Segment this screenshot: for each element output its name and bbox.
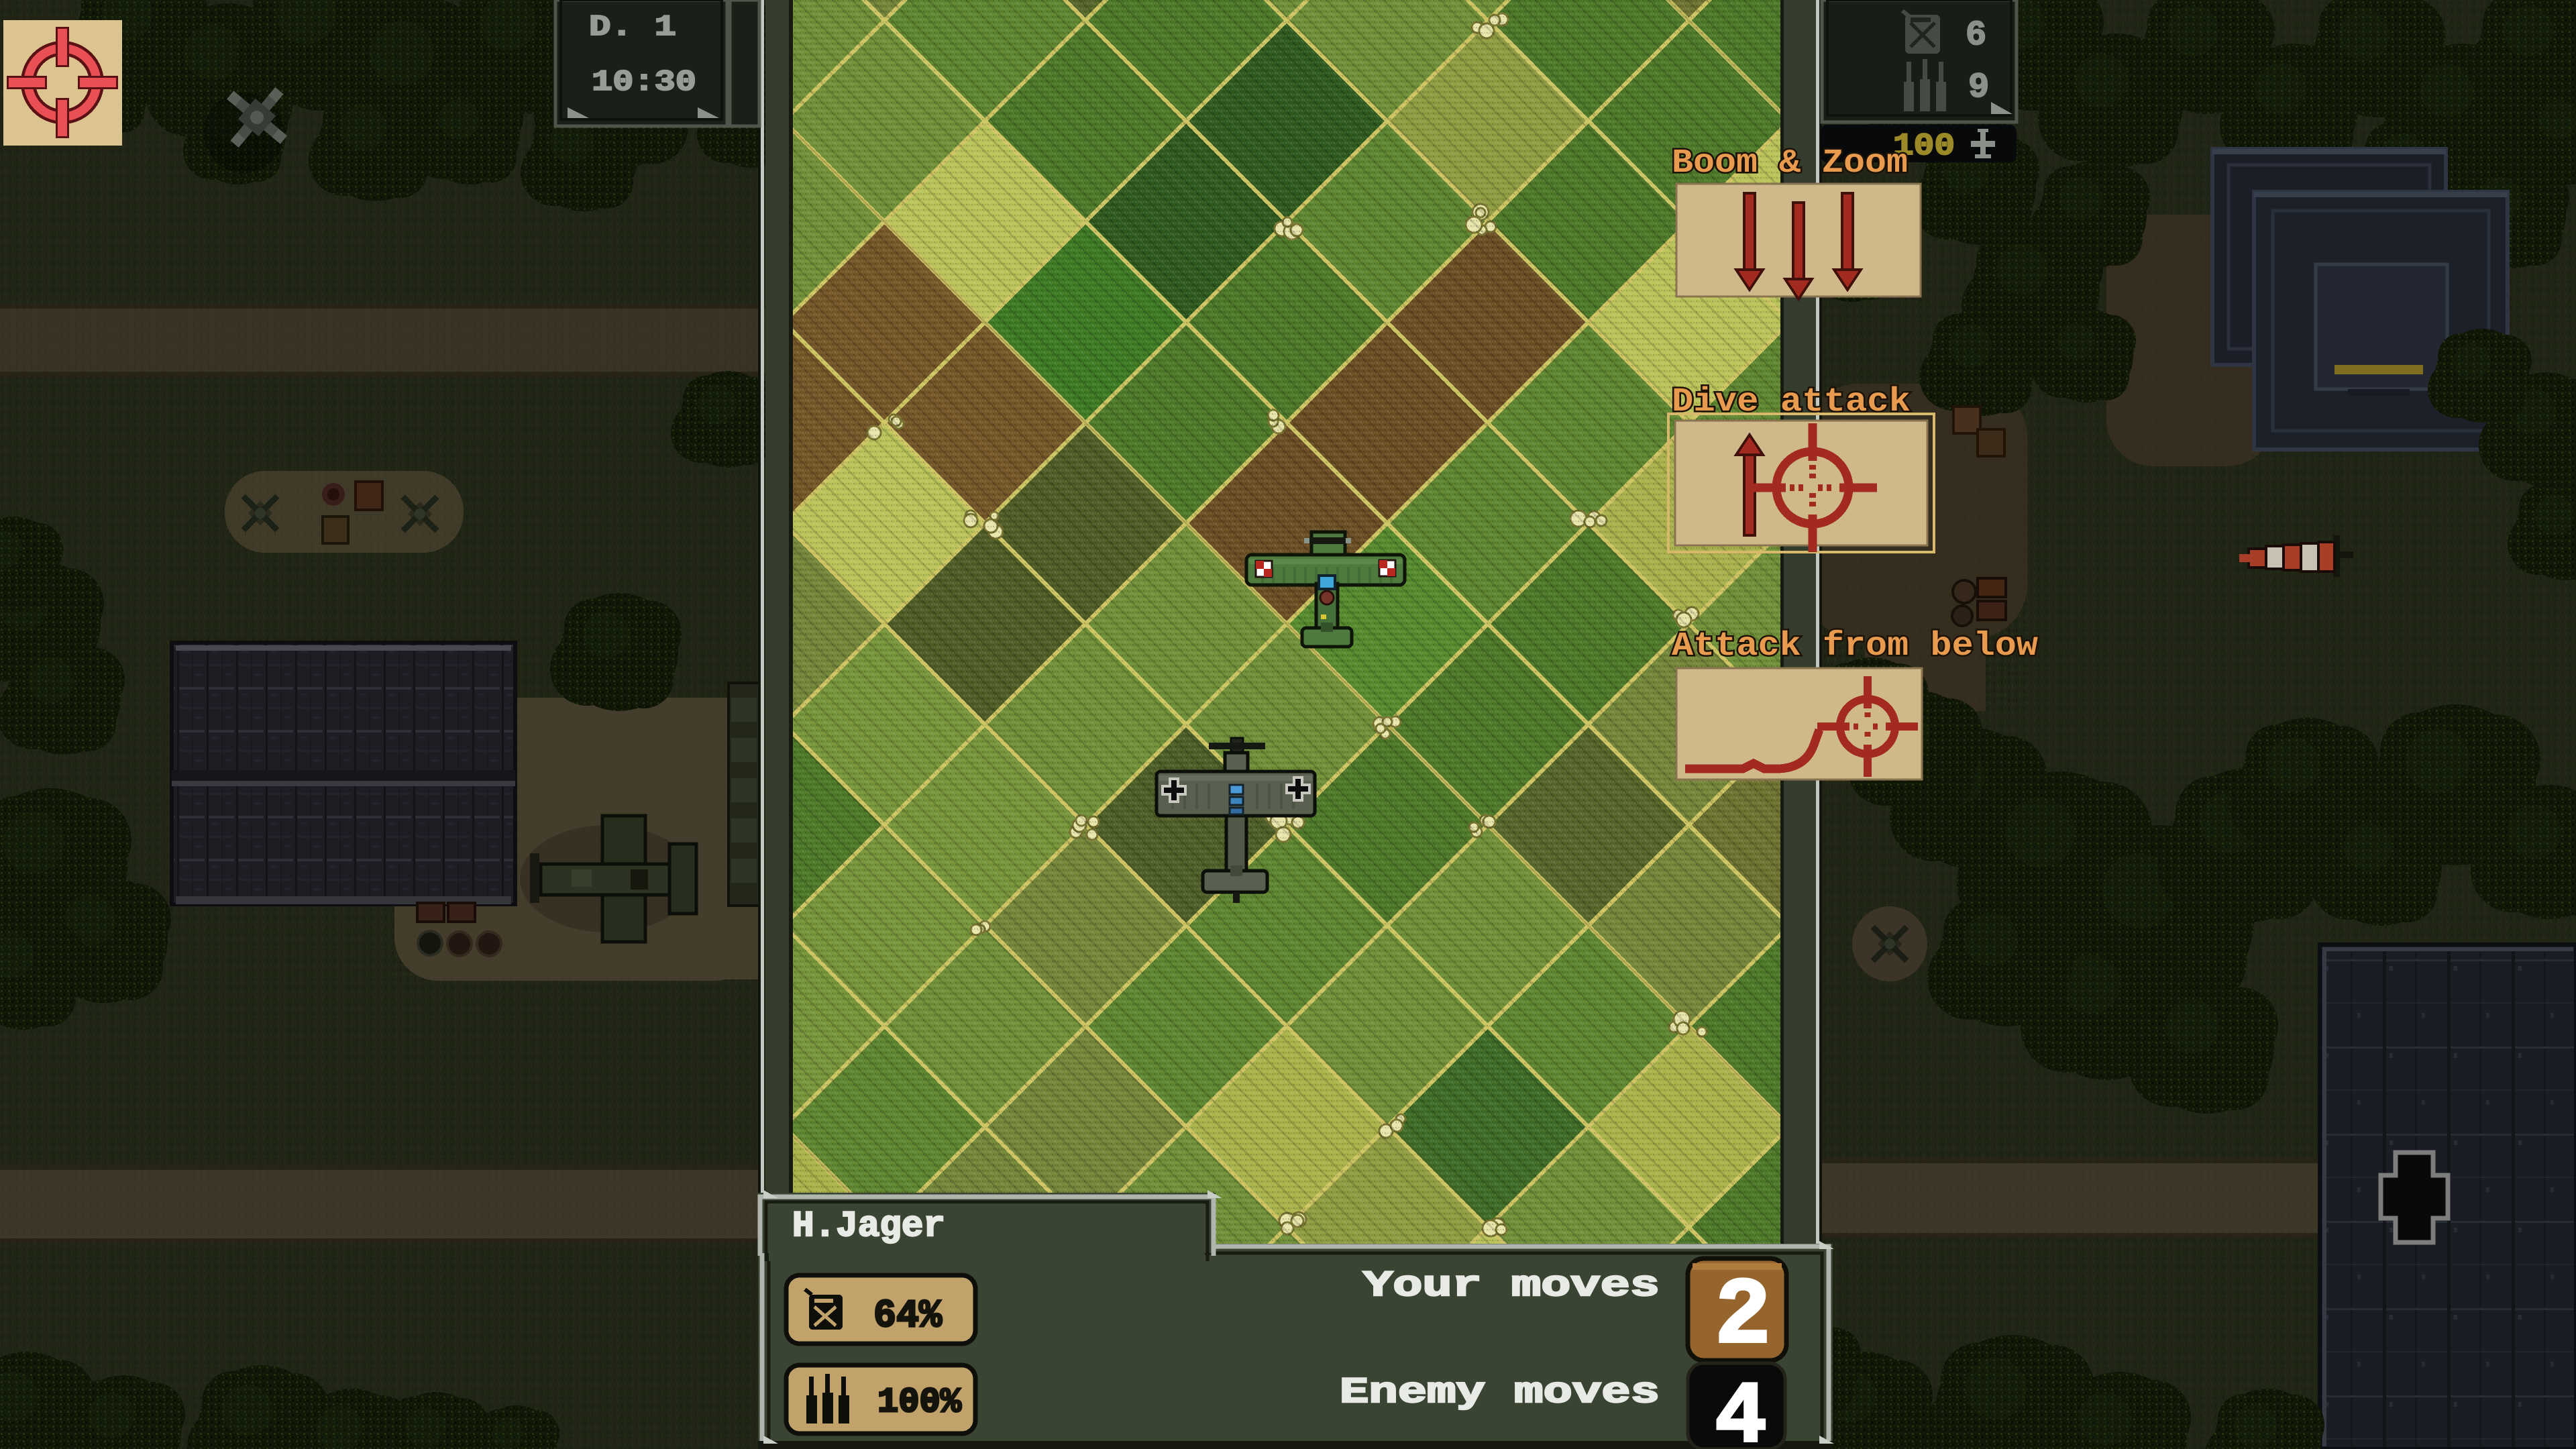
svg-text:D. 1: D. 1	[589, 11, 676, 44]
svg-text:10:30: 10:30	[592, 66, 696, 99]
svg-text:H.Jager: H.Jager	[792, 1206, 945, 1247]
svg-text:64%: 64%	[873, 1295, 942, 1338]
svg-text:Dive attack: Dive attack	[1672, 383, 1911, 421]
svg-text:4: 4	[1715, 1369, 1767, 1449]
svg-text:Boom & Zoom: Boom & Zoom	[1672, 144, 1908, 182]
svg-text:9: 9	[1968, 68, 1989, 107]
svg-text:6: 6	[1966, 15, 1986, 55]
svg-text:Enemy moves: Enemy moves	[1340, 1373, 1660, 1413]
svg-text:2: 2	[1715, 1264, 1771, 1371]
svg-text:Your moves: Your moves	[1363, 1266, 1660, 1307]
svg-text:Attack from below: Attack from below	[1672, 627, 2038, 665]
svg-text:100%: 100%	[877, 1383, 962, 1422]
